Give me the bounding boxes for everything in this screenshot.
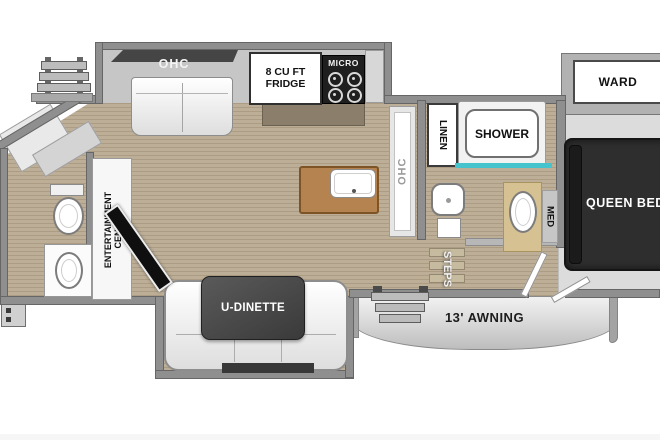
fridge: 8 CU FT FRIDGE (249, 52, 322, 105)
kitchen-counter (365, 50, 384, 103)
awning-right-cap (609, 296, 618, 343)
island-sink (330, 169, 376, 198)
wall-galley-slide-top (95, 42, 392, 50)
steps-label: STEPS (436, 239, 458, 299)
kitchen-ohc-cabinet: OHC (389, 106, 416, 237)
utility-box (1, 303, 26, 327)
bath-toilet-base (437, 218, 461, 238)
galley-ohc-label: OHC (138, 57, 210, 73)
bed-pillow (569, 145, 582, 264)
front-toilet-seat (59, 204, 78, 228)
bath-sink (509, 191, 537, 233)
awning-label: 13' AWNING (445, 310, 524, 325)
wall-galley-slide-left (95, 42, 103, 104)
island-faucet (352, 189, 356, 193)
bath-toilet-drain (446, 198, 451, 203)
micro-stove: MICRO (322, 55, 365, 104)
shower-glass (455, 163, 552, 168)
kitchen-ohc-label: OHC (390, 107, 415, 236)
u-dinette-table: U-DINETTE (201, 276, 305, 340)
page-bottom-strip (0, 434, 660, 440)
front-sink-basin (61, 259, 77, 282)
wall-dinette-left (155, 296, 164, 378)
front-toilet-bowl (53, 197, 84, 235)
front-steps-base (31, 93, 93, 102)
burner-icon (328, 72, 343, 87)
wall-bottom-left (0, 296, 163, 305)
u-dinette-label: U-DINETTE (221, 302, 285, 314)
shower-label: SHOWER (475, 127, 529, 141)
under-counter (262, 103, 365, 126)
bath-sink-basin (515, 198, 531, 226)
entry-step (371, 292, 429, 301)
entry-step (379, 314, 421, 323)
shower-pan: SHOWER (465, 109, 539, 158)
sofa (131, 77, 233, 136)
shower: SHOWER (458, 101, 546, 166)
burner-icon (328, 88, 343, 103)
rv-floorplan: 13' AWNING OHC 8 CU FT FRIDGE MICRO OHC … (0, 0, 660, 440)
front-step (39, 72, 89, 81)
wall-bath-left (417, 100, 426, 240)
burner-icon (347, 88, 362, 103)
med-label: MED (543, 191, 557, 242)
sofa-cushion-divider (182, 83, 183, 133)
linen-label: LINEN (429, 105, 456, 165)
bath-toilet-bowl (431, 183, 465, 216)
front-sink (55, 252, 83, 289)
dinette-window-strip (222, 363, 314, 373)
ward-cabinet: WARD (573, 60, 660, 104)
front-step (41, 61, 87, 70)
entry-step (375, 303, 425, 312)
micro-label: MICRO (323, 58, 364, 68)
burner-icon (347, 72, 362, 87)
front-toilet-tank (50, 184, 84, 196)
med-cabinet: MED (542, 190, 558, 243)
wall-left (0, 148, 8, 304)
utility-port (6, 308, 11, 313)
wall-bottom-right (565, 289, 660, 298)
utility-port (6, 317, 11, 322)
linen-cabinet: LINEN (427, 103, 458, 167)
sofa-back-line (136, 93, 228, 94)
queen-bed-label: QUEEN BED (586, 196, 660, 210)
ward-label: WARD (599, 75, 638, 89)
fridge-label: 8 CU FT FRIDGE (251, 67, 320, 90)
front-step (37, 83, 91, 92)
